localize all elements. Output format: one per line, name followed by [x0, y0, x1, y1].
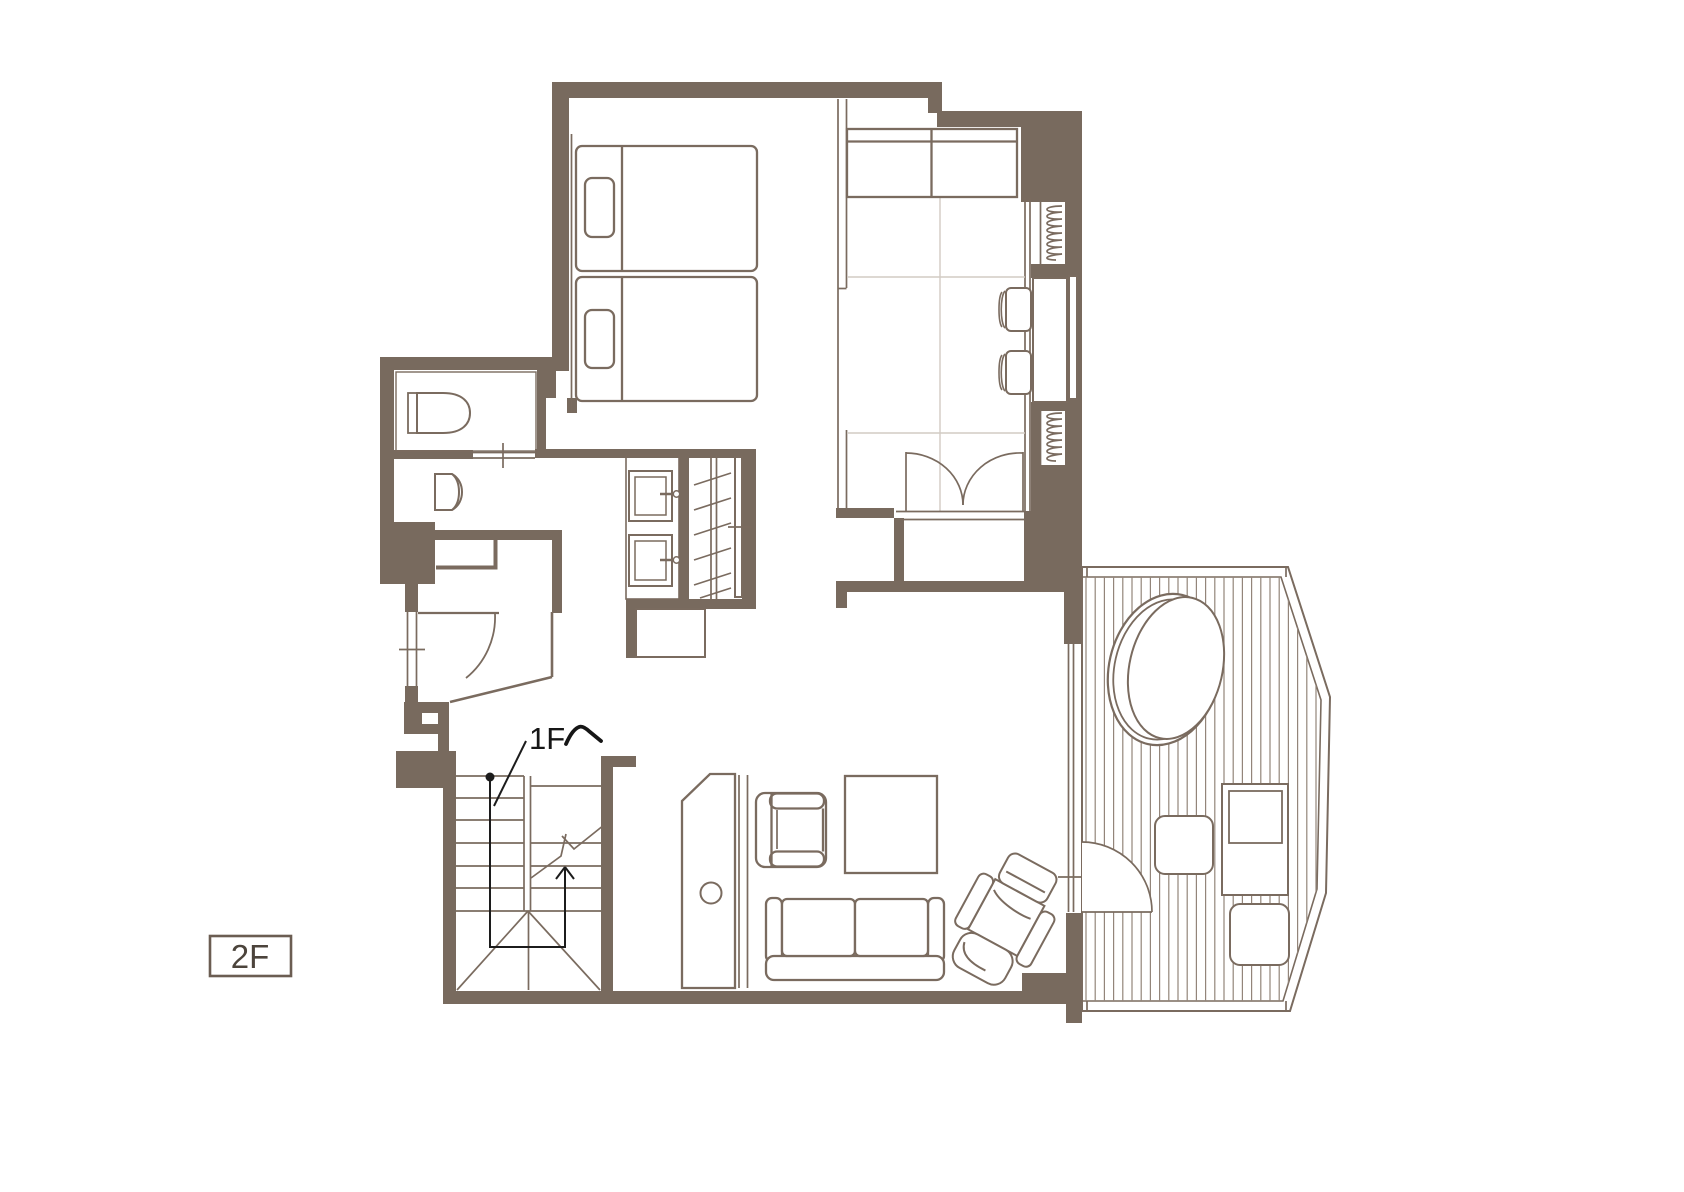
svg-text:1F: 1F	[529, 721, 565, 756]
svg-text:2F: 2F	[231, 938, 270, 975]
